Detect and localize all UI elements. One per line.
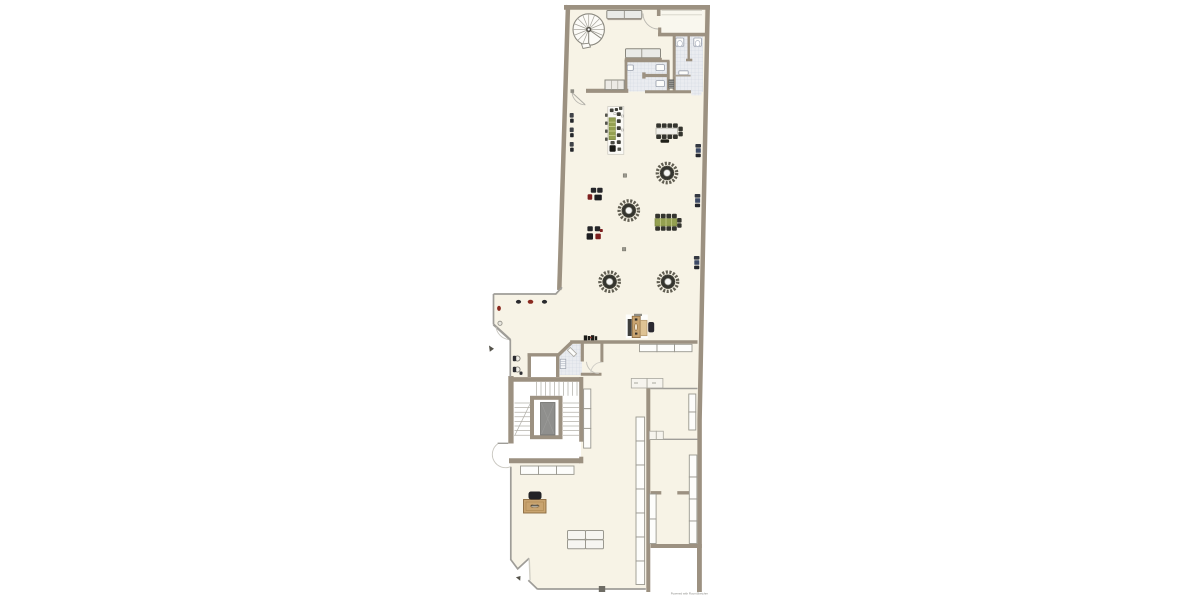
svg-text:Powered with RoomSketcher: Powered with RoomSketcher bbox=[671, 592, 708, 596]
